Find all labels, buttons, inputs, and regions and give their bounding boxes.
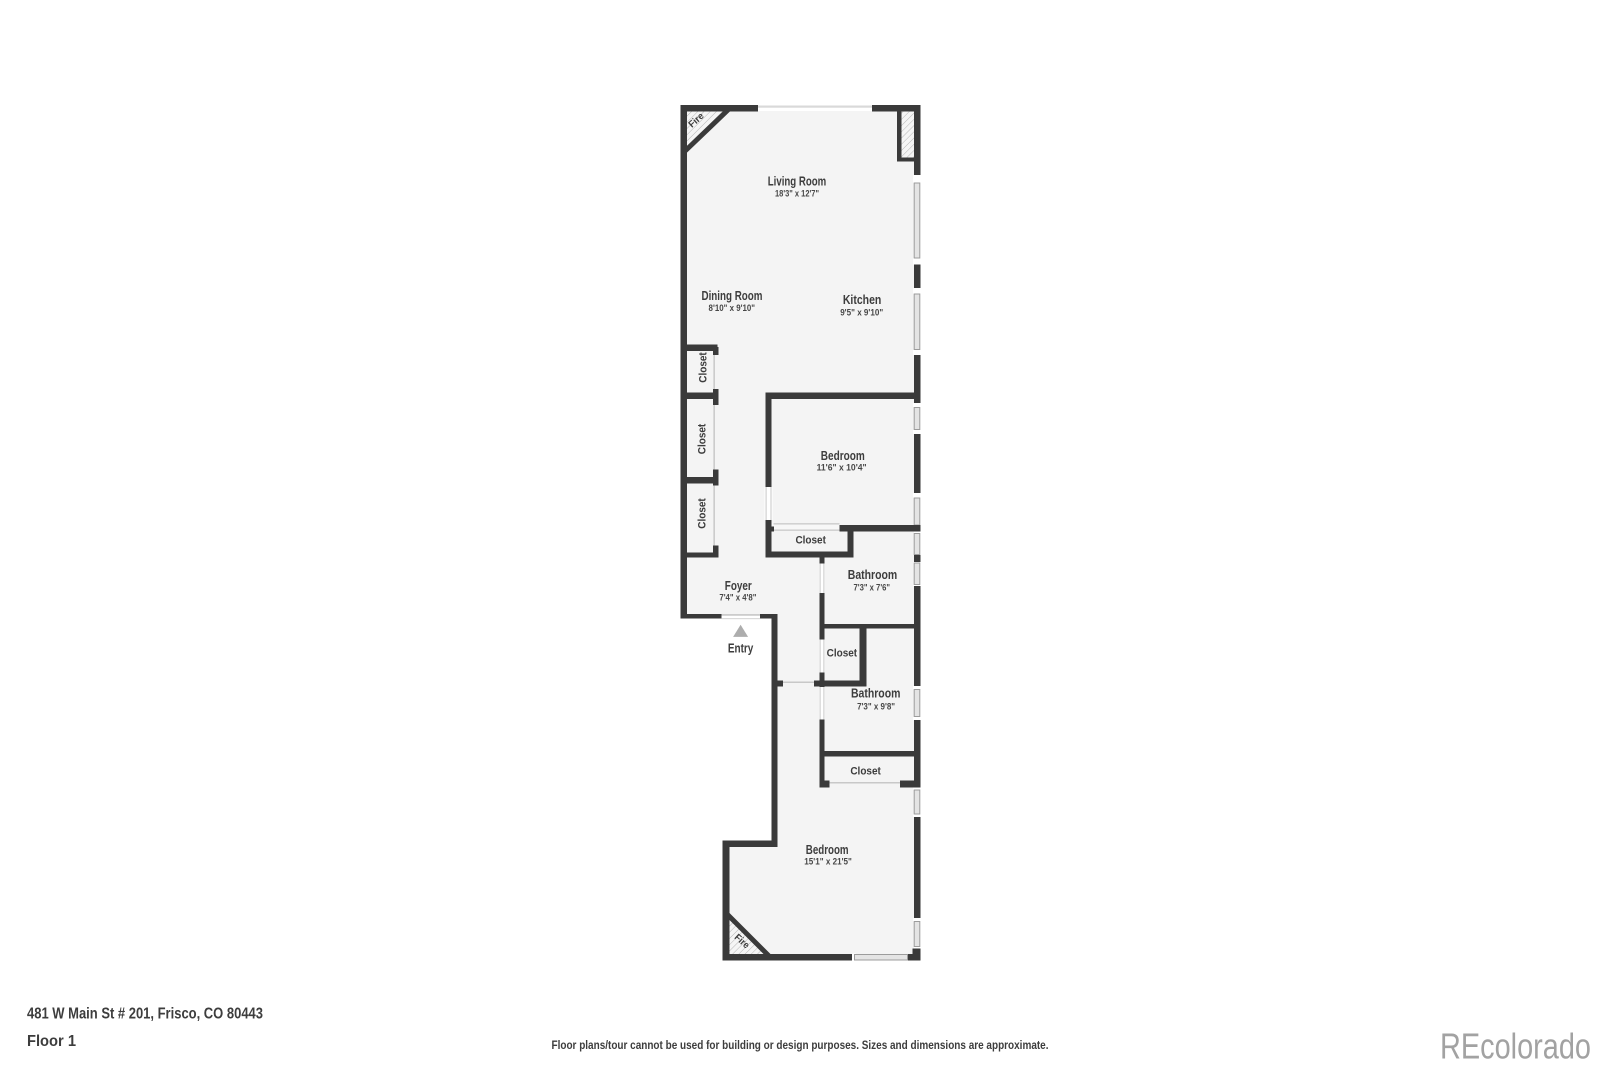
- svg-text:Bedroom: Bedroom: [806, 843, 849, 857]
- svg-text:REcolorado: REcolorado: [1440, 1026, 1591, 1066]
- svg-text:7'3" x 7'6": 7'3" x 7'6": [854, 582, 891, 593]
- svg-text:Floor 1: Floor 1: [27, 1033, 76, 1050]
- svg-text:Bathroom: Bathroom: [848, 568, 898, 582]
- svg-text:11'6" x 10'4": 11'6" x 10'4": [817, 462, 867, 473]
- svg-text:Bedroom: Bedroom: [821, 449, 865, 463]
- svg-text:481 W Main St # 201, Frisco, C: 481 W Main St # 201, Frisco, CO 80443: [27, 1006, 263, 1023]
- svg-text:Closet: Closet: [697, 498, 709, 529]
- svg-text:9'5" x 9'10": 9'5" x 9'10": [840, 308, 883, 319]
- svg-text:8'10" x 9'10": 8'10" x 9'10": [709, 303, 756, 314]
- svg-text:Closet: Closet: [827, 648, 858, 660]
- svg-text:Bathroom: Bathroom: [851, 687, 901, 701]
- svg-text:Kitchen: Kitchen: [843, 293, 882, 307]
- svg-text:Floor plans/tour cannot be use: Floor plans/tour cannot be used for buil…: [552, 1038, 1049, 1052]
- svg-text:7'3" x 9'8": 7'3" x 9'8": [857, 701, 895, 712]
- svg-text:Dining Room: Dining Room: [702, 289, 763, 303]
- svg-text:18'3" x 12'7": 18'3" x 12'7": [775, 189, 819, 200]
- svg-text:Foyer: Foyer: [725, 579, 752, 593]
- svg-text:Closet: Closet: [697, 423, 709, 454]
- svg-text:Living Room: Living Room: [768, 175, 827, 189]
- svg-text:Closet: Closet: [698, 352, 710, 383]
- svg-text:Closet: Closet: [795, 535, 826, 547]
- svg-text:Closet: Closet: [850, 766, 881, 778]
- svg-text:15'1" x 21'5": 15'1" x 21'5": [804, 857, 852, 868]
- svg-text:7'4" x 4'8": 7'4" x 4'8": [719, 592, 756, 603]
- svg-text:Entry: Entry: [728, 641, 754, 655]
